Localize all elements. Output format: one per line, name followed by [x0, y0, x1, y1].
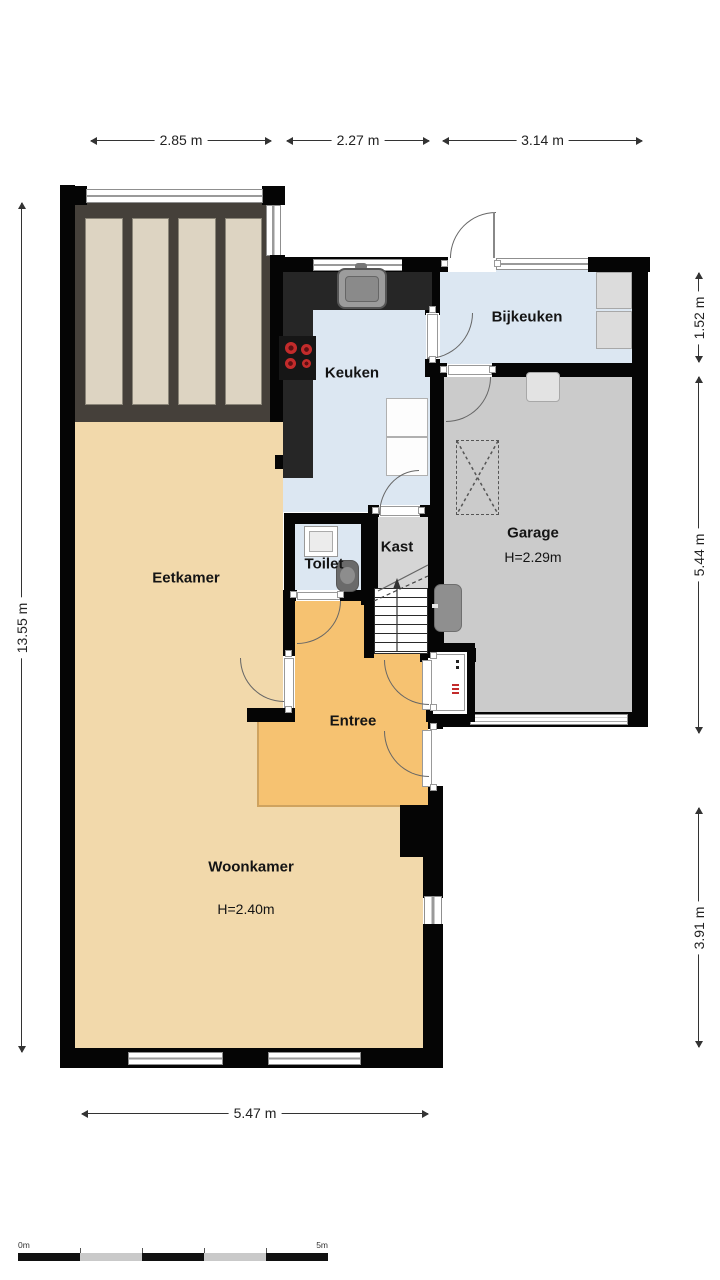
- wall-top-corner-right: [262, 186, 285, 205]
- dimension-right-2: 5.44 m: [698, 377, 699, 733]
- room-label-woonkamer: Woonkamer: [208, 859, 294, 876]
- stairs: [374, 588, 428, 654]
- boiler-vent: [452, 684, 459, 696]
- dimension-label: 2.85 m: [155, 132, 208, 148]
- dimension-label: 3.14 m: [516, 132, 569, 148]
- room-label-keuken: Keuken: [325, 365, 379, 382]
- wall-toilet-left: [284, 513, 295, 601]
- window-woonkamer-bottom-1: [128, 1052, 223, 1065]
- room-label-toilet: Toilet: [305, 556, 344, 573]
- room-entree-floor-ext: [258, 722, 295, 806]
- wall-cap: [430, 723, 437, 730]
- room-height-garage: H=2.29m: [504, 549, 561, 565]
- scale-segment: [18, 1253, 80, 1261]
- dimension-right-3: 3.91 m: [698, 808, 699, 1047]
- wall-cap: [337, 591, 344, 598]
- scale-tick: [80, 1248, 81, 1253]
- scale-end-label: 5m: [316, 1240, 328, 1250]
- wall-cap: [285, 706, 292, 713]
- wall-cap: [290, 591, 297, 598]
- boiler-dot: [456, 660, 459, 663]
- dimension-right-1: 1.52 m: [698, 273, 699, 362]
- scale-segment: [204, 1253, 266, 1261]
- wall-woonkamer-right-upper: [423, 855, 443, 898]
- meter-box: [434, 584, 462, 632]
- water-heater: [526, 372, 560, 402]
- room-height-woonkamer: H=2.40m: [217, 901, 274, 917]
- scale-tick: [266, 1248, 267, 1253]
- room-label-bijkeuken: Bijkeuken: [492, 309, 563, 326]
- room-woonkamer-floor: [75, 806, 423, 1050]
- door-leaf-bijkeuken-garage: [448, 365, 492, 375]
- wall-cap: [430, 704, 437, 711]
- door-leaf-eetkamer: [284, 658, 294, 710]
- dimension-label: 13.55 m: [14, 597, 30, 658]
- dimension-left: 13.55 m: [21, 203, 22, 1052]
- dimension-top-2: 2.27 m: [287, 140, 429, 141]
- room-label-kast: Kast: [381, 539, 414, 556]
- door-leaf-backdoor: [493, 212, 495, 258]
- veranda-panel: [85, 218, 123, 405]
- door-leaf-toilet: [297, 592, 340, 600]
- wall-stairs-left: [364, 588, 374, 658]
- dimension-label: 5.47 m: [229, 1105, 282, 1121]
- window-veranda-top: [86, 189, 263, 203]
- veranda-panel: [178, 218, 216, 405]
- dimension-label: 1.52 m: [691, 291, 707, 344]
- attic-hatch: [456, 440, 499, 515]
- window-woonkamer-bottom-2: [268, 1052, 361, 1065]
- laundry-appliance: [596, 311, 632, 349]
- kitchen-counter-left: [283, 308, 313, 478]
- stove-burner: [285, 342, 297, 354]
- window-veranda-right: [266, 205, 281, 256]
- stove-burner: [302, 359, 311, 368]
- wall-cap: [429, 356, 436, 363]
- dimension-label: 3.91 m: [691, 901, 707, 954]
- wall-cap: [372, 507, 379, 514]
- dimension-top-1: 2.85 m: [91, 140, 271, 141]
- floorplan-canvas: Eetkamer Keuken Bijkeuken Garage H=2.29m…: [0, 0, 720, 1280]
- wall-cap: [285, 650, 292, 657]
- stove-burner: [301, 344, 312, 355]
- boiler-dot: [456, 666, 459, 669]
- wall-woonkamer-right-lower: [423, 924, 443, 1068]
- stove: [279, 336, 316, 380]
- wall-top-corner-left: [60, 186, 87, 205]
- room-label-eetkamer: Eetkamer: [152, 570, 220, 587]
- wall-bottom: [60, 1048, 443, 1068]
- wall-pier-entree-bottom: [400, 805, 443, 857]
- garage-door: [470, 714, 628, 725]
- scale-tick: [142, 1248, 143, 1253]
- scale-segment: [266, 1253, 328, 1261]
- scale-segment: [80, 1253, 142, 1261]
- wall-cap: [429, 306, 436, 313]
- entree-floor-edge-v: [257, 722, 259, 807]
- scale-bar: 0m 5m: [18, 1253, 328, 1261]
- wall-cap: [494, 260, 501, 267]
- laundry-appliance: [596, 272, 632, 309]
- room-label-garage: Garage: [507, 525, 559, 542]
- veranda-panel: [132, 218, 170, 405]
- wall-cap: [430, 784, 437, 791]
- scale-tick: [204, 1248, 205, 1253]
- wall-cap: [441, 260, 448, 267]
- wall-garage-top-right: [492, 363, 648, 377]
- window-woonkamer-right: [424, 896, 442, 926]
- dimension-bottom: 5.47 m: [82, 1113, 428, 1114]
- window-bijkeuken-top: [496, 258, 590, 270]
- veranda-panel: [225, 218, 263, 405]
- kitchen-cabinet: [386, 398, 428, 437]
- kitchen-sink-basin: [345, 276, 379, 302]
- veranda-panel-structure: [75, 203, 272, 422]
- room-label-entree: Entree: [330, 713, 377, 730]
- wall-cap: [489, 366, 496, 373]
- wall-cap: [430, 652, 437, 659]
- kitchen-cabinet: [386, 437, 428, 476]
- dimension-label: 2.27 m: [332, 132, 385, 148]
- meter-box-knob: [432, 604, 438, 608]
- wall-left: [60, 185, 75, 1068]
- wall-cap: [418, 507, 425, 514]
- scale-start-label: 0m: [18, 1240, 30, 1250]
- dimension-top-3: 3.14 m: [443, 140, 642, 141]
- dimension-label: 5.44 m: [691, 529, 707, 582]
- door-swing-arc-backdoor: [450, 212, 496, 258]
- wall-cap: [440, 366, 447, 373]
- scale-segment: [142, 1253, 204, 1261]
- washbasin-bowl: [309, 531, 333, 552]
- stove-burner: [285, 358, 296, 369]
- door-opening-backdoor: [448, 257, 496, 272]
- wall-right: [632, 257, 648, 727]
